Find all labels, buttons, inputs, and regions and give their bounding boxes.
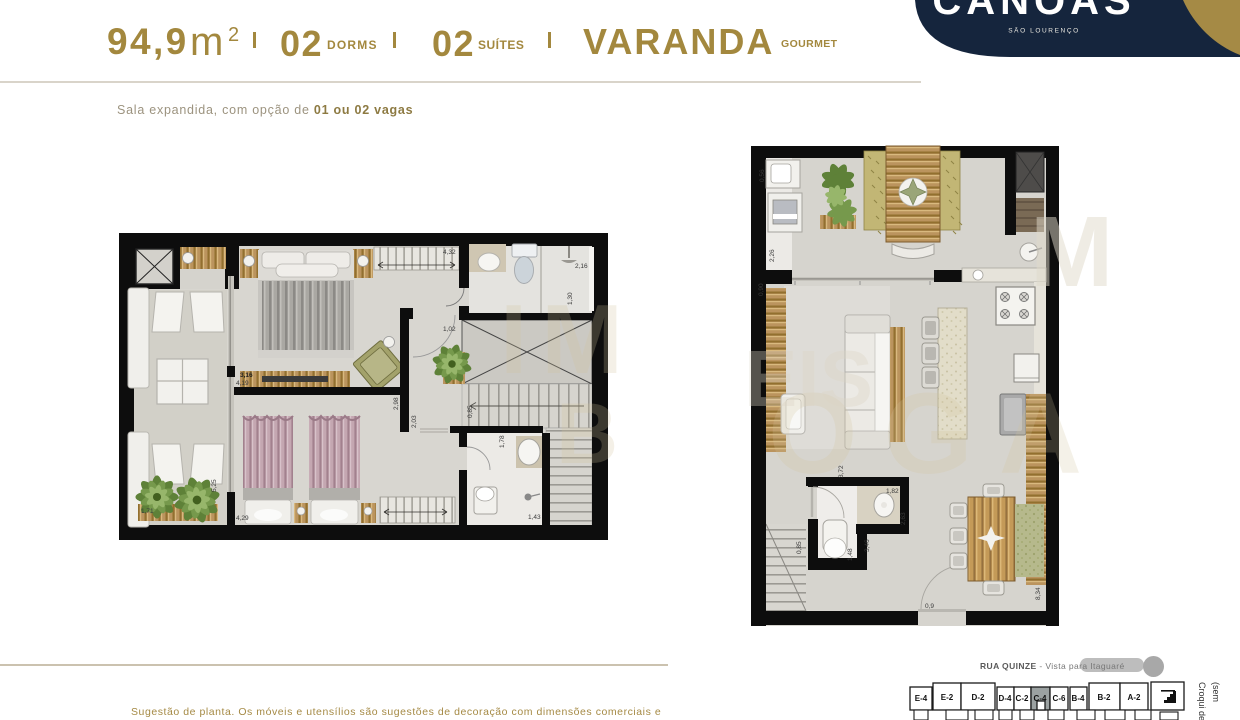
- svg-text:3,72: 3,72: [838, 465, 845, 478]
- svg-text:1,71: 1,71: [141, 508, 154, 515]
- svg-text:4,32: 4,32: [443, 249, 456, 256]
- svg-text:C-2: C-2: [1016, 694, 1029, 703]
- svg-text:3,46: 3,46: [864, 539, 871, 552]
- svg-text:0,85: 0,85: [796, 541, 803, 554]
- svg-text:B-2: B-2: [1098, 693, 1111, 702]
- svg-text:4,29: 4,29: [236, 515, 249, 522]
- svg-text:B-4: B-4: [1072, 694, 1085, 703]
- svg-text:0,56: 0,56: [759, 169, 766, 182]
- svg-text:1,02: 1,02: [443, 326, 456, 333]
- svg-text:0,85: 0,85: [467, 405, 474, 418]
- svg-text:5,25: 5,25: [211, 479, 218, 492]
- svg-text:1,48: 1,48: [847, 548, 854, 561]
- svg-text:D-4: D-4: [999, 694, 1012, 703]
- svg-text:2,03: 2,03: [411, 415, 418, 428]
- svg-text:1,30: 1,30: [567, 292, 574, 305]
- svg-text:2,63: 2,63: [900, 512, 907, 525]
- svg-text:D-2: D-2: [972, 693, 985, 702]
- svg-text:A-2: A-2: [1128, 693, 1141, 702]
- svg-text:3,16: 3,16: [240, 372, 253, 379]
- svg-text:1,78: 1,78: [499, 435, 506, 448]
- svg-text:0,9: 0,9: [925, 603, 934, 610]
- svg-text:0,90: 0,90: [758, 283, 765, 296]
- svg-text:2,26: 2,26: [769, 249, 776, 262]
- svg-text:SÃO LOURENÇO: SÃO LOURENÇO: [1008, 26, 1080, 35]
- svg-text:2,98: 2,98: [393, 397, 400, 410]
- svg-text:4,19: 4,19: [236, 380, 249, 387]
- svg-text:1,43: 1,43: [528, 514, 541, 521]
- svg-text:E-2: E-2: [941, 693, 954, 702]
- svg-text:1,82: 1,82: [886, 488, 899, 495]
- svg-text:C-4: C-4: [1034, 694, 1047, 703]
- svg-text:8,34: 8,34: [1035, 587, 1042, 600]
- svg-text:E-4: E-4: [915, 694, 928, 703]
- svg-text:CANOAS: CANOAS: [932, 0, 1135, 23]
- svg-text:2,16: 2,16: [575, 263, 588, 270]
- svg-text:C-6: C-6: [1053, 694, 1066, 703]
